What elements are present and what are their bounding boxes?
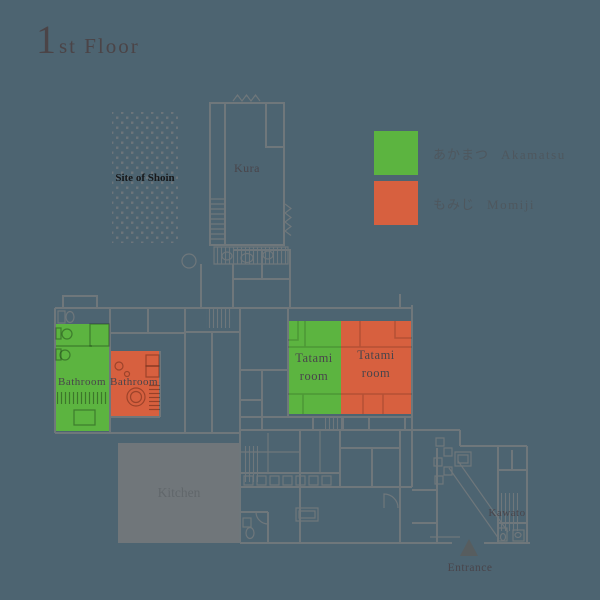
kura-porch-hatch <box>214 247 288 264</box>
bathroom-momiji-label: Bathroom <box>110 376 158 388</box>
floor-plan-page: 1st Floor あかまつAkamatsu もみじMomiji <box>0 0 600 600</box>
tatami-akamatsu-fill <box>288 321 341 414</box>
tatami-akamatsu-label-line1: Tatami <box>295 351 333 365</box>
tatami-momiji-label-line1: Tatami <box>357 348 395 362</box>
tatami-akamatsu-label-line2: room <box>300 369 328 383</box>
engawa-step-hatch <box>325 417 343 430</box>
kura-label: Kura <box>234 161 260 175</box>
floor-plan-drawing: Site of Shoin Kura Bathroom Bathroom Tat… <box>0 0 600 600</box>
kitchen-label: Kitchen <box>158 485 201 500</box>
entrance-arrow-icon <box>460 539 478 556</box>
entrance-label: Entrance <box>448 562 493 574</box>
bathroom-akamatsu-label: Bathroom <box>58 376 106 388</box>
kitchen-side-hatch <box>243 446 258 482</box>
site-of-shoin-label: Site of Shoin <box>115 172 174 184</box>
bathroom-akamatsu-hatch <box>57 392 108 404</box>
corridor-stair-hatch <box>206 308 232 328</box>
kawato-label: Kawato <box>488 507 525 519</box>
tatami-momiji-label-line2: room <box>362 366 390 380</box>
